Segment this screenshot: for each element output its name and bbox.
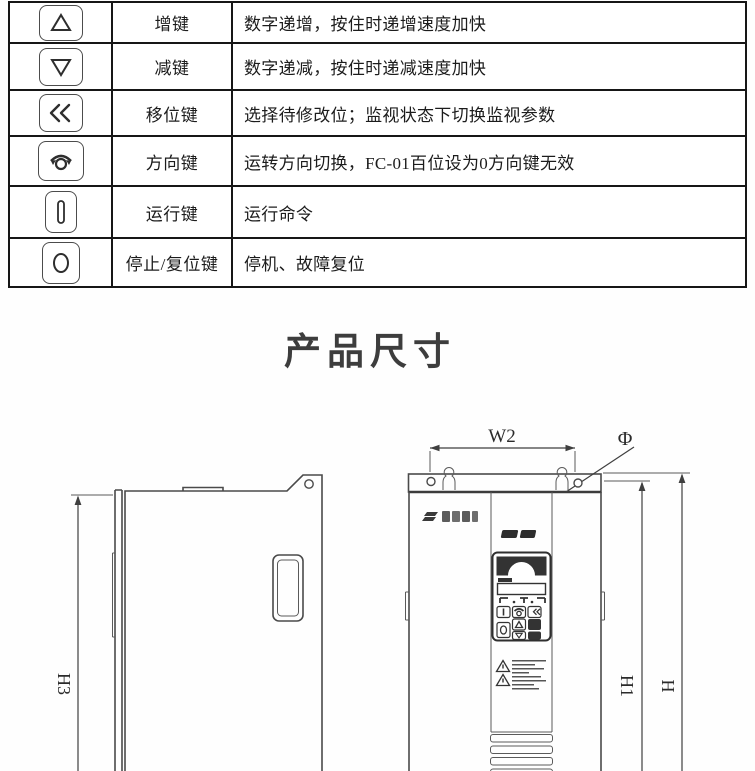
key-name: 方向键 [113, 137, 233, 185]
stop-reset-key-icon [497, 623, 510, 638]
key-name: 减键 [113, 44, 233, 89]
manual-page: 增键 数字递增，按住时递增速度加快 减键 数字递减，按住时递减速度加快 移位键 … [0, 0, 755, 771]
key-description: 运转方向切换，FC-01百位设为0方向键无效 [233, 137, 745, 185]
table-row: 增键 数字递增，按住时递增速度加快 [10, 3, 745, 44]
keypad-display [498, 584, 546, 595]
front-view-drawing [406, 467, 605, 771]
dimension-h3: H3 [54, 495, 113, 771]
table-row: 停止/复位键 停机、故障复位 [10, 239, 745, 286]
enter-key-icon [528, 619, 541, 630]
side-view-drawing: H3 [54, 475, 322, 771]
key-description: 数字递减，按住时递减速度加快 [233, 44, 745, 89]
page-title: 产品尺寸 [0, 329, 740, 375]
dim-label-h: H [658, 680, 678, 693]
table-row: 移位键 选择待修改位；监视状态下切换监视参数 [10, 91, 745, 137]
model-label [501, 530, 537, 538]
dim-label-h3: H3 [54, 673, 74, 695]
table-row: 方向键 运转方向切换，FC-01百位设为0方向键无效 [10, 137, 745, 187]
side-handle-slot [273, 555, 303, 621]
key-description: 停机、故障复位 [233, 239, 745, 286]
keyhole-slot [443, 467, 455, 490]
key-function-table: 增键 数字递增，按住时递增速度加快 减键 数字递减，按住时递减速度加快 移位键 … [8, 1, 747, 288]
keyhole-slot [556, 467, 568, 490]
enter-key-icon [528, 632, 541, 640]
run-key-icon [45, 191, 77, 233]
vent-slats [491, 735, 553, 771]
mounting-hole [305, 480, 313, 488]
stop-reset-key-icon [42, 242, 80, 284]
dimension-h: H [603, 473, 690, 771]
keypad-panel [493, 553, 551, 641]
decrease-key-icon [39, 48, 83, 86]
warning-label [497, 660, 547, 690]
dimension-phi: Φ [566, 428, 634, 492]
key-name: 增键 [113, 3, 233, 42]
dimension-w2: W2 [430, 426, 575, 472]
mounting-hole [427, 478, 435, 486]
key-description: 数字递增，按住时递增速度加快 [233, 3, 745, 42]
key-name: 停止/复位键 [113, 239, 233, 286]
direction-key-icon [38, 141, 84, 181]
shift-key-icon [39, 94, 83, 132]
key-name: 移位键 [113, 91, 233, 135]
key-name: 运行键 [113, 187, 233, 237]
dimension-h1: H1 [604, 481, 650, 771]
key-description: 运行命令 [233, 187, 745, 237]
phi-hole [574, 479, 582, 487]
dim-label-w2: W2 [488, 426, 515, 447]
increase-key-icon [39, 5, 83, 41]
table-row: 减键 数字递减，按住时递减速度加快 [10, 44, 745, 91]
key-description: 选择待修改位；监视状态下切换监视参数 [233, 91, 745, 135]
product-dimension-drawing: H3 [0, 400, 755, 771]
dim-label-h1: H1 [617, 675, 637, 697]
brand-logo [422, 511, 478, 522]
table-row: 运行键 运行命令 [10, 187, 745, 239]
warning-text-lines [512, 660, 546, 690]
dim-label-phi: Φ [618, 428, 633, 450]
